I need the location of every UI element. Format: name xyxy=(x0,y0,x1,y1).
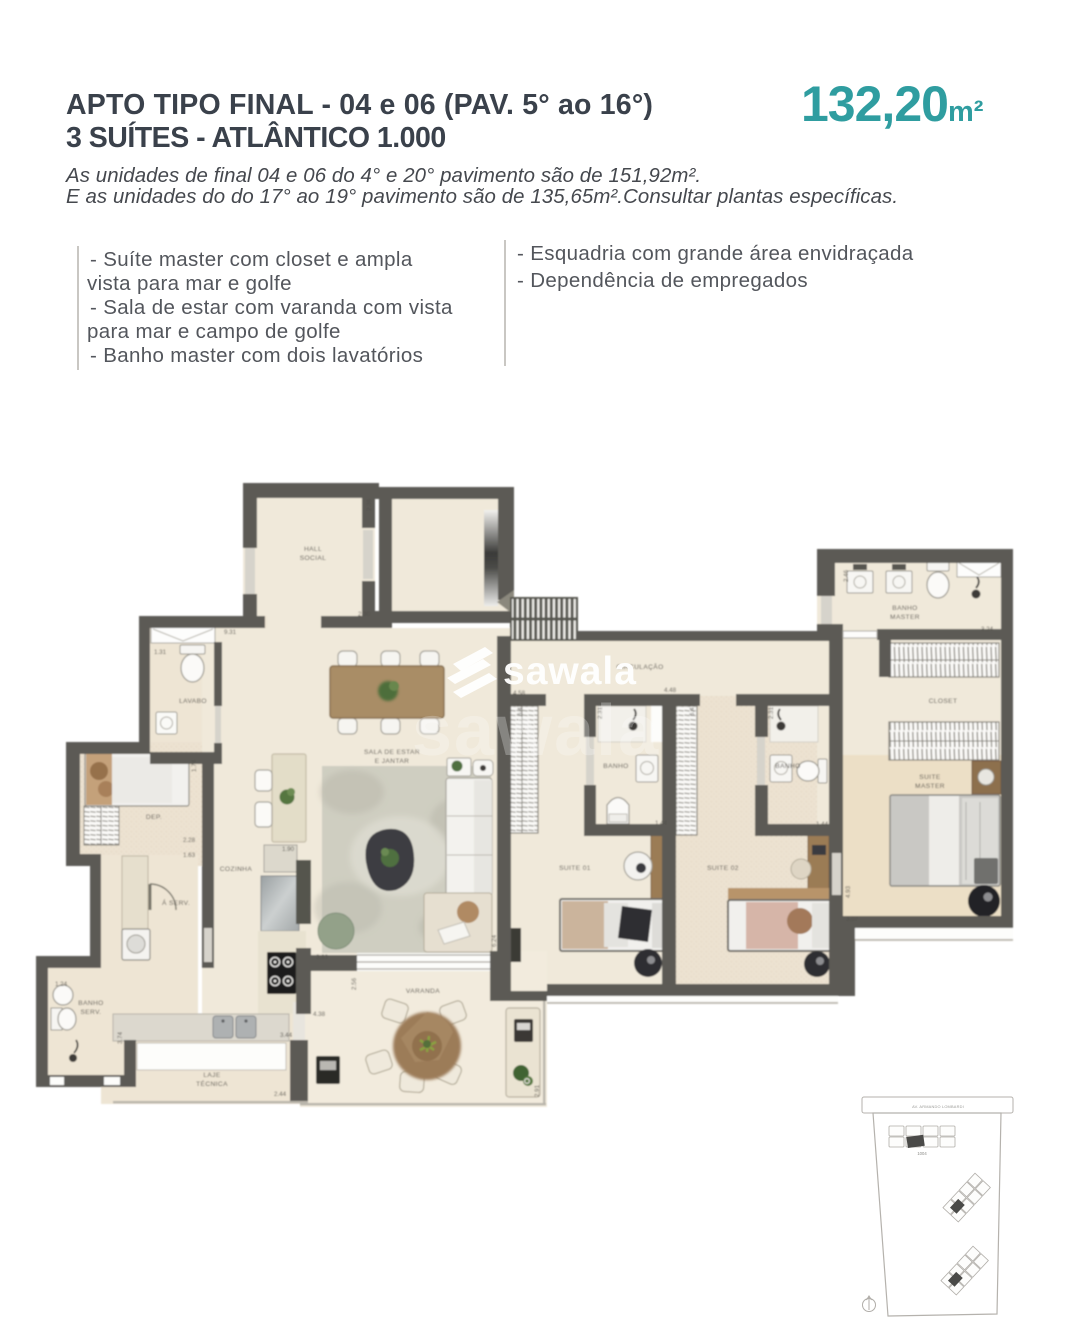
svg-text:MASTER: MASTER xyxy=(890,614,920,621)
svg-text:2.30: 2.30 xyxy=(358,611,371,618)
svg-text:- Sala de estar com varanda co: - Sala de estar com varanda com vista xyxy=(90,296,453,319)
svg-text:COZINHA: COZINHA xyxy=(220,866,253,873)
svg-text:3.24: 3.24 xyxy=(981,626,994,633)
svg-text:2.46: 2.46 xyxy=(843,569,850,582)
svg-text:TÉCNICA: TÉCNICA xyxy=(196,1079,228,1088)
svg-text:sawala: sawala xyxy=(412,691,660,771)
svg-text:AV. ARMANDO LOMBARDI: AV. ARMANDO LOMBARDI xyxy=(912,1104,964,1109)
svg-text:2.36: 2.36 xyxy=(366,498,373,511)
svg-text:1.44: 1.44 xyxy=(655,820,668,827)
svg-text:E JANTAR: E JANTAR xyxy=(375,758,410,765)
svg-text:1.90: 1.90 xyxy=(282,846,295,853)
svg-text:1.74: 1.74 xyxy=(191,759,198,772)
svg-text:SOCIAL: SOCIAL xyxy=(300,555,327,562)
svg-text:- Banho master com dois lavató: - Banho master com dois lavatórios xyxy=(90,344,423,367)
svg-text:1.63: 1.63 xyxy=(183,852,196,859)
svg-text:E as unidades do do 17° ao 19°: E as unidades do do 17° ao 19° pavimento… xyxy=(66,186,898,208)
svg-text:4.38: 4.38 xyxy=(313,1011,326,1018)
svg-text:2.56: 2.56 xyxy=(351,977,358,990)
svg-text:As unidades de final 04 e 06 d: As unidades de final 04 e 06 do 4° e 20°… xyxy=(65,165,701,187)
svg-text:2.28: 2.28 xyxy=(183,837,196,844)
svg-text:6.24: 6.24 xyxy=(491,934,498,947)
svg-text:6.47: 6.47 xyxy=(689,703,696,716)
svg-text:3.74: 3.74 xyxy=(117,1031,124,1044)
svg-text:1.44: 1.44 xyxy=(816,821,829,828)
svg-text:2.44: 2.44 xyxy=(274,1091,287,1098)
svg-text:Á SERV.: Á SERV. xyxy=(162,898,190,907)
svg-text:3.63: 3.63 xyxy=(316,954,329,961)
svg-text:SUITE: SUITE xyxy=(919,774,941,781)
svg-text:MASTER: MASTER xyxy=(915,783,945,790)
svg-text:9.31: 9.31 xyxy=(224,629,237,636)
svg-text:- Esquadria com grande área en: - Esquadria com grande área envidraçada xyxy=(517,242,914,265)
svg-text:1.24: 1.24 xyxy=(55,981,68,988)
svg-text:BANHO: BANHO xyxy=(78,1000,103,1007)
svg-text:sawala: sawala xyxy=(503,650,637,693)
svg-text:4.48: 4.48 xyxy=(664,687,677,694)
svg-text:3.44: 3.44 xyxy=(280,1032,293,1039)
svg-text:SUITE 02: SUITE 02 xyxy=(707,865,739,872)
svg-text:- Suíte master com closet e am: - Suíte master com closet e ampla xyxy=(90,248,413,271)
svg-text:APTO TIPO FINAL - 04 e 06 (PAV: APTO TIPO FINAL - 04 e 06 (PAV. 5° ao 16… xyxy=(66,89,653,121)
svg-text:CLOSET: CLOSET xyxy=(929,698,958,705)
svg-text:2.31: 2.31 xyxy=(768,706,775,719)
svg-text:- Dependência de empregados: - Dependência de empregados xyxy=(517,269,808,292)
svg-text:HALL: HALL xyxy=(304,546,322,553)
svg-text:BANHO: BANHO xyxy=(775,763,800,770)
svg-text:SERV.: SERV. xyxy=(80,1009,101,1016)
svg-text:1.31: 1.31 xyxy=(154,649,167,656)
svg-text:SUITE 01: SUITE 01 xyxy=(559,865,591,872)
svg-text:1004: 1004 xyxy=(917,1151,927,1156)
svg-text:LAJE: LAJE xyxy=(203,1072,221,1079)
svg-text:para mar e campo de golfe: para mar e campo de golfe xyxy=(87,320,341,343)
svg-text:2.91: 2.91 xyxy=(534,1084,541,1097)
svg-text:BANHO: BANHO xyxy=(892,605,917,612)
svg-text:LAVABO: LAVABO xyxy=(179,698,207,705)
svg-text:3 SUÍTES - ATLÂNTICO 1.000: 3 SUÍTES - ATLÂNTICO 1.000 xyxy=(66,122,446,154)
svg-text:DEP.: DEP. xyxy=(146,814,162,821)
svg-text:3.07: 3.07 xyxy=(846,916,859,923)
svg-text:vista para mar e golfe: vista para mar e golfe xyxy=(87,272,292,295)
svg-text:VARANDA: VARANDA xyxy=(406,988,440,995)
svg-text:4.93: 4.93 xyxy=(845,885,852,898)
